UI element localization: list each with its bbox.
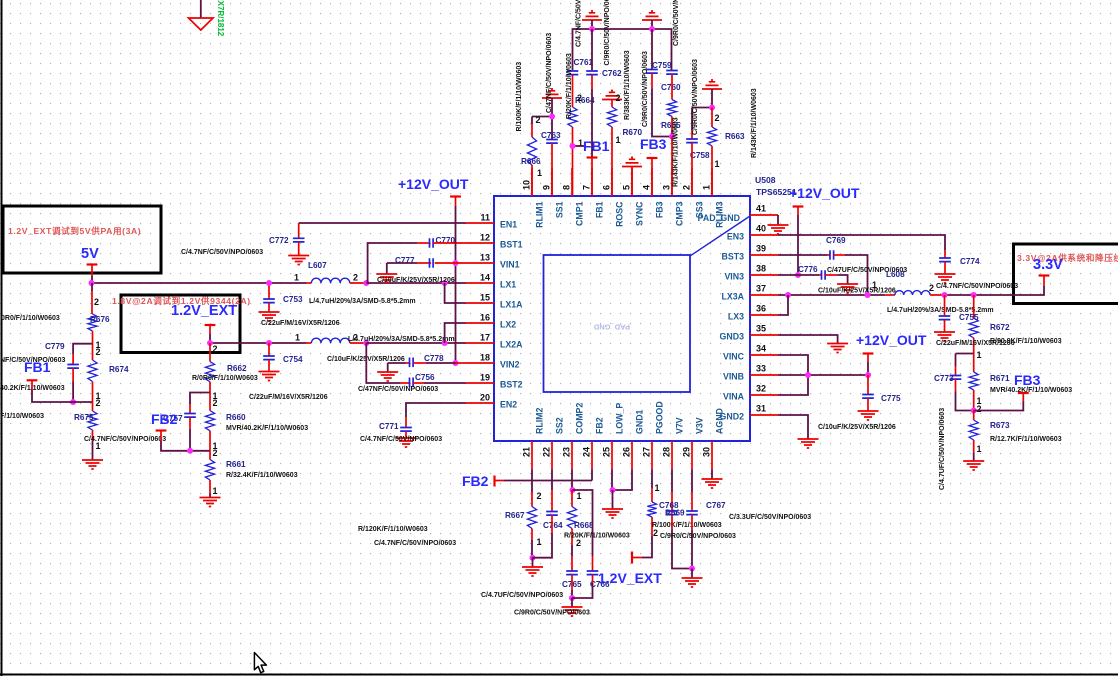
svg-text:R666: R666: [521, 157, 541, 166]
svg-text:L608: L608: [886, 270, 905, 279]
svg-text:29: 29: [682, 447, 692, 457]
svg-text:C758: C758: [690, 151, 710, 160]
svg-text:1: 1: [294, 273, 299, 283]
svg-text:SS1: SS1: [555, 201, 565, 218]
svg-text:5V: 5V: [81, 246, 99, 262]
svg-text:25: 25: [602, 447, 612, 457]
svg-text:R676: R676: [90, 315, 110, 324]
svg-text:1.2V_EXT: 1.2V_EXT: [598, 570, 662, 586]
svg-text:VIN2: VIN2: [500, 360, 520, 370]
svg-text:C756: C756: [415, 373, 435, 382]
svg-text:BST1: BST1: [500, 240, 523, 250]
svg-text:F/1/10/W0603: F/1/10/W0603: [0, 413, 44, 420]
svg-text:+12V_OUT: +12V_OUT: [789, 185, 860, 201]
svg-text:C773: C773: [934, 374, 954, 383]
svg-text:C/9R0/C/50V/NPO/0603: C/9R0/C/50V/NPO/0603: [660, 533, 736, 540]
svg-text:12: 12: [480, 233, 490, 243]
svg-text:14: 14: [480, 273, 490, 283]
svg-text:FB1: FB1: [24, 359, 51, 375]
svg-text:EN2: EN2: [500, 400, 517, 410]
svg-text:2: 2: [96, 398, 101, 408]
svg-text:R672: R672: [990, 323, 1010, 332]
svg-text:11: 11: [480, 213, 490, 223]
svg-text:5: 5: [622, 185, 632, 190]
svg-text:C777: C777: [395, 256, 415, 265]
svg-text:R674: R674: [109, 365, 129, 374]
svg-text:8: 8: [562, 185, 572, 190]
svg-text:2: 2: [616, 93, 621, 103]
svg-text:VINC: VINC: [723, 352, 745, 362]
svg-text:R/100K/F/1/10/W0603: R/100K/F/1/10/W0603: [516, 62, 523, 132]
svg-text:R/12.7K/F/1/10/W0603: R/12.7K/F/1/10/W0603: [990, 436, 1062, 443]
svg-text:V7V: V7V: [675, 417, 685, 434]
svg-text:GND2: GND2: [720, 412, 745, 422]
svg-text:C/4.7NF/C/50V/NPO/0603: C/4.7NF/C/50V/NPO/0603: [374, 540, 456, 547]
svg-text:38: 38: [756, 264, 766, 274]
svg-text:RLIM2: RLIM2: [535, 408, 545, 434]
svg-text:R/20K/F/1/10/W0603: R/20K/F/1/10/W0603: [564, 533, 630, 540]
svg-text:1: 1: [702, 185, 712, 190]
svg-text:2: 2: [213, 398, 218, 408]
svg-text:C/4.7NF/C/50V/NPO/0603: C/4.7NF/C/50V/NPO/0603: [360, 436, 442, 443]
svg-text:24: 24: [582, 447, 592, 457]
svg-text:U508: U508: [755, 175, 776, 185]
svg-text:C/47NF/C/50V/NPO/0603: C/47NF/C/50V/NPO/0603: [358, 386, 438, 393]
svg-text:C761: C761: [574, 58, 594, 67]
svg-text:FB3: FB3: [640, 136, 667, 152]
svg-text:2: 2: [94, 297, 99, 307]
svg-text:1: 1: [977, 444, 982, 454]
svg-text:EN3: EN3: [727, 232, 744, 242]
svg-text:1: 1: [577, 491, 582, 501]
svg-text:C/10uF/K/25V/X5R/1206: C/10uF/K/25V/X5R/1206: [818, 424, 896, 431]
svg-text:2: 2: [977, 404, 982, 414]
svg-text:MVR/40.2K/F/1/10/W0603: MVR/40.2K/F/1/10/W0603: [226, 425, 308, 432]
svg-text:21: 21: [522, 447, 532, 457]
svg-text:1.2V_EXT: 1.2V_EXT: [171, 303, 237, 319]
svg-text:LX2A: LX2A: [500, 340, 523, 350]
svg-text:27: 27: [642, 447, 652, 457]
svg-text:GND3: GND3: [720, 332, 745, 342]
svg-text:L/4.7uH/20%/3A/SMD-5.8*5.2mm: L/4.7uH/20%/3A/SMD-5.8*5.2mm: [309, 298, 416, 305]
svg-text:C/9R0/C/50V/NPO/0603: C/9R0/C/50V/NPO/0603: [604, 0, 611, 66]
svg-text:13: 13: [480, 253, 490, 263]
svg-text:10: 10: [522, 180, 532, 190]
svg-text:9: 9: [542, 185, 552, 190]
svg-text:C769: C769: [826, 236, 846, 245]
svg-text:R/120K/F/1/10/W0603: R/120K/F/1/10/W0603: [358, 526, 428, 533]
svg-text:23: 23: [562, 447, 572, 457]
svg-text:LOW_P: LOW_P: [615, 403, 625, 434]
svg-text:2: 2: [653, 528, 658, 538]
svg-text:C/4.7UF/C/50V/NPO/0603: C/4.7UF/C/50V/NPO/0603: [939, 408, 946, 490]
svg-text:31: 31: [756, 404, 766, 414]
svg-text:20: 20: [480, 393, 490, 403]
svg-text:C/4.7NF/C/50V/NPO/0603: C/4.7NF/C/50V/NPO/0603: [936, 283, 1018, 290]
svg-text:RLIM1: RLIM1: [535, 201, 545, 227]
svg-text:R669: R669: [665, 509, 685, 518]
svg-text:40: 40: [756, 224, 766, 234]
svg-text:2: 2: [576, 538, 581, 548]
svg-text:BST3: BST3: [722, 252, 745, 262]
svg-text:LX1A: LX1A: [500, 300, 523, 310]
svg-text:R/383K/F/1/10/W0603: R/383K/F/1/10/W0603: [624, 50, 631, 120]
svg-text:C760: C760: [661, 83, 681, 92]
svg-text:COMP2: COMP2: [575, 403, 585, 434]
svg-text:C767: C767: [706, 501, 726, 510]
svg-text:6: 6: [602, 185, 612, 190]
svg-text:C763: C763: [541, 131, 561, 140]
svg-text:FB2: FB2: [595, 417, 605, 434]
svg-text:+12V_OUT: +12V_OUT: [856, 332, 927, 348]
svg-text:3.3V: 3.3V: [1033, 257, 1063, 273]
svg-text:C753: C753: [283, 295, 303, 304]
svg-text:FB2: FB2: [151, 411, 178, 427]
svg-text:L/4.7uH/20%/3A/SMD-5.8*5.2mm: L/4.7uH/20%/3A/SMD-5.8*5.2mm: [348, 336, 455, 343]
svg-text:PGOOD: PGOOD: [655, 401, 665, 434]
svg-text:35: 35: [756, 324, 766, 334]
svg-text:C772: C772: [269, 236, 289, 245]
svg-text:C/4.7NF/C/50V/NPO/0603: C/4.7NF/C/50V/NPO/0603: [181, 249, 263, 256]
svg-text:2: 2: [213, 448, 218, 458]
svg-text:R660: R660: [226, 413, 246, 422]
svg-text:FB1: FB1: [583, 138, 610, 154]
svg-text:VIN1: VIN1: [500, 260, 520, 270]
svg-text:17: 17: [480, 333, 490, 343]
svg-text:C775: C775: [881, 394, 901, 403]
svg-text:19: 19: [480, 373, 490, 383]
svg-text:30: 30: [702, 447, 712, 457]
svg-text:2: 2: [353, 273, 358, 283]
svg-text:C/4.7NF/C/50V/NPO/0603: C/4.7NF/C/50V/NPO/0603: [84, 436, 166, 443]
svg-text:LX3A: LX3A: [722, 292, 745, 302]
svg-text:R675: R675: [74, 413, 94, 422]
svg-text:C/9R0/C/50V/NPO/0603: C/9R0/C/50V/NPO/0603: [642, 51, 649, 127]
svg-text:SS2: SS2: [555, 417, 565, 434]
svg-text:28: 28: [662, 447, 672, 457]
svg-text:C/47NF/C/50V/NPO/0603: C/47NF/C/50V/NPO/0603: [546, 33, 553, 113]
svg-text:LX3: LX3: [728, 312, 744, 322]
svg-text:1: 1: [213, 486, 218, 496]
svg-text:R673: R673: [990, 421, 1010, 430]
svg-text:C759: C759: [652, 61, 672, 70]
svg-text:V3V: V3V: [695, 417, 705, 434]
svg-text:33: 33: [756, 364, 766, 374]
svg-text:1: 1: [655, 483, 660, 493]
svg-text:+12V_OUT: +12V_OUT: [398, 176, 469, 192]
svg-text:L607: L607: [308, 261, 327, 270]
svg-text:ROSC: ROSC: [615, 201, 625, 227]
svg-text:C/9R0/C/50V/NPO/0603: C/9R0/C/50V/NPO/0603: [673, 0, 680, 46]
svg-text:C/22uF/M/16V/X5R/1206: C/22uF/M/16V/X5R/1206: [936, 340, 1015, 347]
svg-text:2: 2: [96, 347, 101, 357]
svg-text:FB3: FB3: [1014, 372, 1041, 388]
svg-text:2: 2: [536, 115, 541, 125]
svg-text:3: 3: [662, 185, 672, 190]
svg-text:R/100K/F/1/10/W0603: R/100K/F/1/10/W0603: [652, 522, 722, 529]
svg-text:18: 18: [480, 353, 490, 363]
svg-text:R/0R0/F/1/10/W0603: R/0R0/F/1/10/W0603: [192, 375, 258, 382]
svg-text:/2X7R/1812: /2X7R/1812: [216, 0, 225, 37]
svg-text:39: 39: [756, 244, 766, 254]
svg-text:CMP3: CMP3: [675, 201, 685, 226]
svg-text:FB3: FB3: [655, 201, 665, 218]
svg-text:1: 1: [537, 537, 542, 547]
svg-text:R662: R662: [227, 364, 247, 373]
svg-text:R/32.4K/F/1/10/W0603: R/32.4K/F/1/10/W0603: [226, 472, 298, 479]
svg-text:16: 16: [480, 313, 490, 323]
svg-text:GND1: GND1: [635, 409, 645, 434]
svg-text:34: 34: [756, 344, 766, 354]
svg-text:C/4.7UF/C/50V/NPO/0603: C/4.7UF/C/50V/NPO/0603: [481, 592, 563, 599]
svg-text:R/143K/F/1/10/W0603: R/143K/F/1/10/W0603: [751, 88, 758, 158]
svg-text:C762: C762: [602, 69, 622, 78]
svg-text:1: 1: [977, 350, 982, 360]
svg-text:R661: R661: [226, 460, 246, 469]
svg-text:FB2: FB2: [462, 473, 489, 489]
svg-text:32: 32: [756, 384, 766, 394]
svg-text:C/22uF/M/16V/X5R/1206: C/22uF/M/16V/X5R/1206: [249, 394, 328, 401]
svg-text:15: 15: [480, 293, 490, 303]
svg-text:C771: C771: [379, 422, 399, 431]
svg-text:2: 2: [213, 344, 218, 354]
svg-text:1.2V_EXT调试到5V供PA用(3A): 1.2V_EXT调试到5V供PA用(3A): [8, 225, 141, 236]
svg-text:C/10uF/K/25V/X5R/1206: C/10uF/K/25V/X5R/1206: [818, 288, 896, 295]
svg-text:R/143K/F/1/10/W0603: R/143K/F/1/10/W0603: [673, 117, 680, 187]
svg-text:C755: C755: [959, 313, 979, 322]
svg-text:C776: C776: [798, 265, 818, 274]
svg-text:R671: R671: [990, 374, 1010, 383]
svg-text:LX1: LX1: [500, 280, 516, 290]
svg-text:C/22uF/M/16V/X5R/1206: C/22uF/M/16V/X5R/1206: [261, 320, 340, 327]
svg-text:R668: R668: [574, 521, 594, 530]
svg-text:2: 2: [577, 93, 582, 103]
svg-text:C779: C779: [45, 342, 65, 351]
svg-text:VINA: VINA: [723, 392, 745, 402]
svg-text:26: 26: [622, 447, 632, 457]
svg-text:1: 1: [715, 159, 720, 169]
svg-text:C/9R0/C/50V/NPO/0603: C/9R0/C/50V/NPO/0603: [692, 59, 699, 135]
svg-text:22: 22: [542, 447, 552, 457]
svg-text:C/3.3UF/C/50V/NPO/0603: C/3.3UF/C/50V/NPO/0603: [729, 514, 811, 521]
svg-text:1: 1: [295, 333, 300, 343]
svg-text:C764: C764: [543, 521, 563, 530]
svg-text:2: 2: [537, 491, 542, 501]
svg-text:R667: R667: [505, 511, 525, 520]
svg-text:2: 2: [715, 113, 720, 123]
svg-text:VINB: VINB: [723, 372, 744, 382]
svg-text:FB1: FB1: [595, 201, 605, 218]
svg-text:C754: C754: [283, 355, 303, 364]
svg-text:1: 1: [872, 280, 877, 290]
svg-text:C/9R0/C/50V/NPO/0603: C/9R0/C/50V/NPO/0603: [514, 610, 590, 617]
svg-text:PAD_GND: PAD_GND: [593, 323, 630, 332]
svg-text:R/20K/F/1/10/W0603: R/20K/F/1/10/W0603: [566, 53, 573, 119]
svg-text:C774: C774: [960, 257, 980, 266]
svg-text:0R0/F/1/10/W0603: 0R0/F/1/10/W0603: [1, 315, 60, 322]
svg-text:2: 2: [929, 283, 934, 293]
svg-text:PAD_GND: PAD_GND: [698, 213, 740, 223]
svg-text:36: 36: [756, 304, 766, 314]
svg-text:VIN3: VIN3: [724, 272, 744, 282]
svg-text:R663: R663: [725, 132, 745, 141]
svg-text:SYNC: SYNC: [635, 201, 645, 226]
svg-text:C778: C778: [424, 354, 444, 363]
svg-text:2: 2: [682, 185, 692, 190]
svg-text:CMP1: CMP1: [575, 201, 585, 226]
svg-text:EN1: EN1: [500, 220, 517, 230]
svg-text:37: 37: [756, 284, 766, 294]
svg-text:C/4.7NF/C/50V/NPO/0603: C/4.7NF/C/50V/NPO/0603: [576, 0, 583, 47]
svg-text:7: 7: [582, 185, 592, 190]
svg-text:1: 1: [537, 168, 542, 178]
svg-text:C/10uF/K/25V/X5R/1206: C/10uF/K/25V/X5R/1206: [377, 277, 455, 284]
svg-text:BST2: BST2: [500, 380, 523, 390]
svg-text:LX2: LX2: [500, 320, 516, 330]
svg-text:MVR/40.2K/F/1/10/W0603: MVR/40.2K/F/1/10/W0603: [990, 387, 1072, 394]
svg-text:1: 1: [616, 135, 621, 145]
svg-text:41: 41: [756, 204, 766, 214]
svg-text:4: 4: [642, 185, 652, 190]
